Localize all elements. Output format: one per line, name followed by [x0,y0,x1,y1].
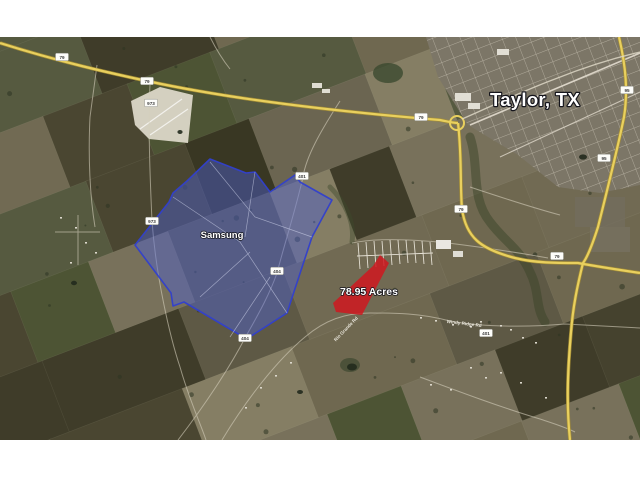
satellite-map: 79 79 973 401 973 404 404 401 95 95 79 7… [0,37,640,440]
road-shield: 95 [598,154,611,162]
svg-text:95: 95 [624,88,630,93]
warehouse-building [436,240,451,249]
svg-text:79: 79 [418,115,424,120]
road-shield: 79 [551,252,564,260]
svg-text:79: 79 [144,79,150,84]
road-shield: 404 [271,267,284,275]
city-label: Taylor, TX [490,89,580,110]
svg-text:79: 79 [458,207,464,212]
road-shield: 973 [145,99,158,107]
svg-text:79: 79 [554,254,560,259]
road-shield: 401 [480,329,493,337]
road-shield: 401 [296,172,309,180]
svg-text:404: 404 [273,269,281,274]
svg-text:401: 401 [482,331,490,336]
letterbox-frame: 79 79 973 401 973 404 404 401 95 95 79 7… [0,0,640,480]
road-shield: 79 [56,53,69,61]
road-shield: 79 [415,113,428,121]
svg-text:973: 973 [148,219,156,224]
svg-text:404: 404 [241,336,249,341]
svg-text:79: 79 [59,55,65,60]
samsung-site-label: Samsung [201,230,244,241]
svg-text:401: 401 [298,174,306,179]
road-shield: 79 [455,205,468,213]
parcel-acreage-label: 78.95 Acres [340,286,398,298]
svg-text:95: 95 [601,156,607,161]
road-shield: 404 [239,334,252,342]
satellite-image: 79 79 973 401 973 404 404 401 95 95 79 7… [0,37,640,440]
road-shield: 973 [146,217,159,225]
svg-text:973: 973 [147,101,155,106]
road-shield: 79 [141,77,154,85]
road-shield: 95 [621,86,634,94]
